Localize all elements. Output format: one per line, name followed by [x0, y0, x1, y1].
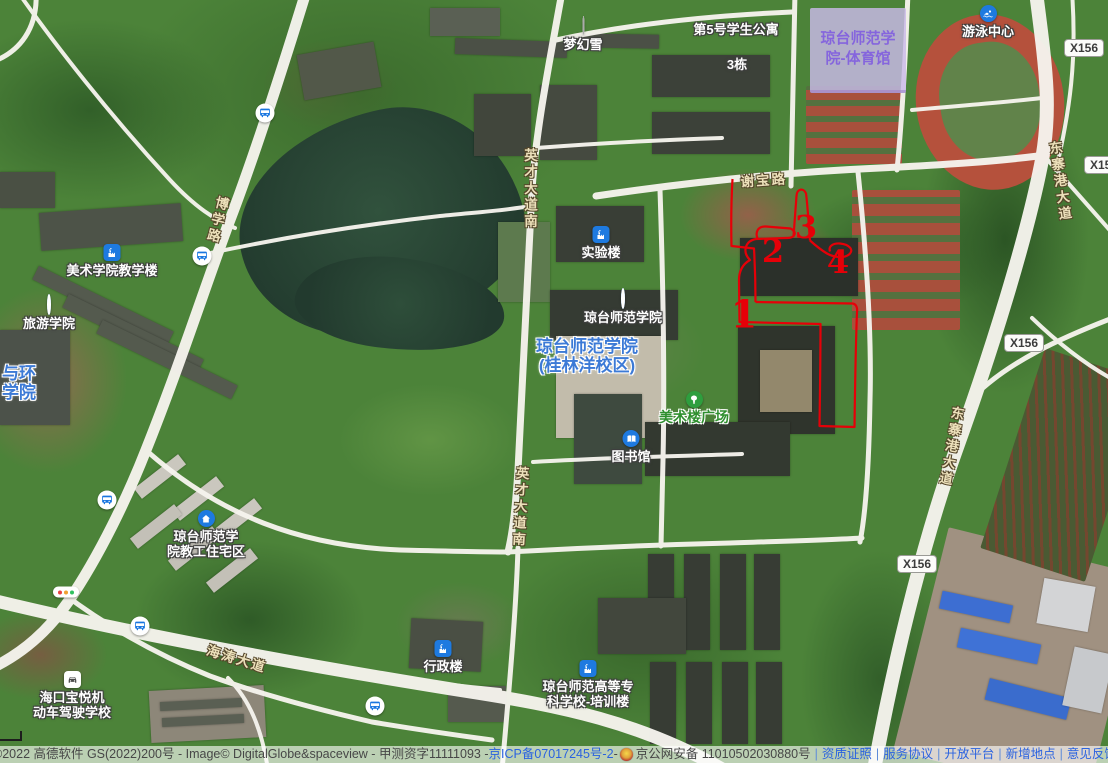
building-icon: [579, 660, 596, 677]
building-icon: [434, 640, 451, 657]
poi-art-college-teaching-building[interactable]: 美术学院教学楼: [66, 244, 157, 278]
route-shield-1: X156: [1084, 156, 1108, 174]
footer-link[interactable]: 意见反馈: [1067, 747, 1108, 761]
road-label-0: 谢宝路: [740, 167, 788, 190]
road-label-2: 英才大道南: [519, 148, 539, 231]
poi-label-text: 行政楼: [423, 659, 462, 674]
poi-library[interactable]: 图书馆: [611, 430, 650, 464]
bus-icon: [256, 104, 275, 123]
map-canvas[interactable]: 琼台师范学 院-体育馆 ©2022 高德软件 GS(2022)200号 - Im…: [0, 0, 1108, 763]
poi-label-text: 实验楼: [581, 245, 620, 260]
poi-label-text: 琼台师范学: [173, 529, 238, 544]
poi-label-text: 琼台师范学院: [584, 310, 662, 325]
footer-link[interactable]: 资质证照: [822, 747, 872, 761]
police-badge-icon: [620, 748, 633, 761]
poi-label-text: 院教工住宅区: [167, 544, 245, 559]
poi-label-text: 科学校-培训楼: [547, 694, 629, 709]
building-icon: [103, 244, 120, 261]
bus-icon: [193, 247, 212, 266]
poi-label-text: 梦幻雪: [563, 37, 602, 52]
poi-menghuanxue[interactable]: 梦幻雪: [563, 17, 602, 52]
poi-label-text: (桂林洋校区): [539, 356, 635, 375]
footer-separator: |: [872, 747, 883, 761]
beian-text: 京公网安备 11010502030880号: [636, 746, 811, 763]
footer-link[interactable]: 开放平台: [944, 747, 994, 761]
poi-label-text: 动车驾驶学校: [33, 705, 111, 720]
dot-blue-icon: [47, 296, 51, 314]
bus-icon: [366, 697, 385, 716]
bus-icon: [98, 491, 117, 510]
poi-label-text: 3栋: [727, 57, 747, 72]
footer-link[interactable]: 服务协议: [883, 747, 933, 761]
bus-stop[interactable]: [131, 617, 150, 636]
poi-admin-building[interactable]: 行政楼: [423, 640, 462, 674]
poi-campus-name[interactable]: 琼台师范学院(桂林洋校区): [536, 337, 638, 375]
poi-label-text: 琼台师范高等专: [542, 679, 633, 694]
bus-stop[interactable]: [98, 491, 117, 510]
route-shield-0: X156: [1064, 39, 1104, 57]
poi-label-text: 美术学院教学楼: [66, 263, 157, 278]
bus-icon: [131, 617, 150, 636]
poi-driving-school[interactable]: 海口宝悦机动车驾驶学校: [33, 671, 111, 720]
poi-staff-housing[interactable]: 琼台师范学院教工住宅区: [167, 510, 245, 559]
poi-label-text: 游泳中心: [962, 24, 1014, 39]
attribution-bar: ©2022 高德软件 GS(2022)200号 - Image© Digital…: [0, 746, 1108, 763]
poi-partial-college[interactable]: 与环学院: [2, 364, 36, 402]
building-icon: [592, 226, 609, 243]
poi-qiongtai-normal-college-poi[interactable]: 琼台师范学院: [584, 290, 662, 325]
icp-link[interactable]: 京ICP备07017245号-2: [488, 746, 613, 763]
poi-label-text: 旅游学院: [23, 316, 75, 331]
footer-separator: |: [811, 747, 822, 761]
gym-area-label[interactable]: 琼台师范学 院-体育馆: [810, 8, 906, 93]
poi-swimming-center[interactable]: 游泳中心: [962, 5, 1014, 39]
car-icon: [63, 671, 80, 688]
gym-label-line2: 院-体育馆: [826, 49, 891, 69]
dash: -: [614, 746, 618, 763]
tree-icon: [686, 391, 703, 408]
route-shield-2: X156: [1004, 334, 1044, 352]
copyright-text: ©2022 高德软件 GS(2022)200号 - Image© Digital…: [0, 746, 488, 763]
book-icon: [622, 430, 639, 447]
poi-label-text: 与环: [2, 364, 36, 383]
footer-separator: |: [1056, 747, 1067, 761]
scale-bar: [0, 731, 22, 741]
bus-stop[interactable]: [366, 697, 385, 716]
poi-label-text: 美术楼广场: [659, 410, 729, 425]
poi-label-text: 琼台师范学院: [536, 337, 638, 356]
poi-label-text: 学院: [2, 383, 36, 402]
dot-blue-icon: [621, 290, 625, 308]
footer-link[interactable]: 新增地点: [1006, 747, 1056, 761]
poi-student-apartment-5[interactable]: 第5号学生公寓: [693, 22, 778, 37]
route-shield-3: X156: [897, 555, 937, 573]
road-network: [0, 0, 1108, 763]
poi-training-building[interactable]: 琼台师范高等专科学校-培训楼: [542, 660, 633, 709]
swim-icon: [979, 5, 996, 22]
poi-label-text: 海口宝悦机: [39, 690, 104, 705]
dot-white-icon: [582, 17, 584, 35]
poi-building-3dong[interactable]: 3栋: [727, 57, 747, 72]
poi-shiyanlou[interactable]: 实验楼: [581, 226, 620, 260]
gym-label-line1: 琼台师范学: [820, 29, 895, 49]
footer-separator: |: [933, 747, 944, 761]
traffic-light-icon: [53, 587, 79, 598]
poi-label-text: 第5号学生公寓: [693, 22, 778, 37]
poi-label-text: 图书馆: [611, 449, 650, 464]
poi-tourism-college[interactable]: 旅游学院: [23, 296, 75, 331]
poi-art-plaza[interactable]: 美术楼广场: [659, 391, 729, 425]
footer-separator: |: [994, 747, 1005, 761]
home-icon: [197, 510, 214, 527]
bus-stop[interactable]: [193, 247, 212, 266]
bus-stop[interactable]: [256, 104, 275, 123]
